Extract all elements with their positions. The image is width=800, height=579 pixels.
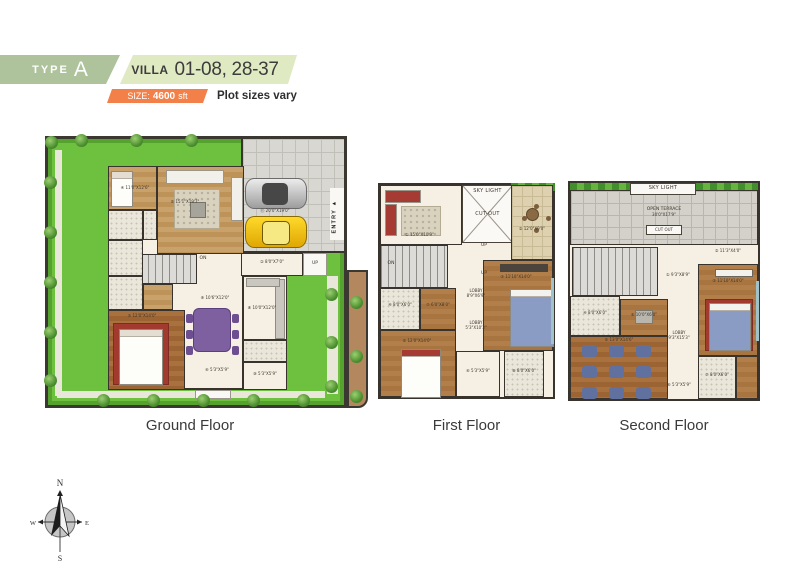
villa-band: VILLA 01-08, 28-37 xyxy=(113,55,297,84)
tree-icon xyxy=(185,134,198,147)
ground-floor-plan: ENTRY ▲ ⑪ 20'0"X19'0" ④ 11'0"X12'6" ⑤ 15… xyxy=(45,136,368,408)
second-store-label: ⑥ 5'3"X5'9" xyxy=(662,383,696,388)
dining-label: ⑨ 10'6"X12'0" xyxy=(193,296,237,301)
bed-headboard xyxy=(402,350,440,357)
car-yellow-cabin xyxy=(262,221,290,245)
tree-icon xyxy=(197,394,210,407)
first-bed5-label: ⑤ 12'0"X14'0" xyxy=(392,339,442,344)
tree-icon xyxy=(325,336,338,349)
compass-s: S xyxy=(58,554,62,563)
second-lobby-b-label: LOBBY 9'3"X15'3" xyxy=(664,331,694,340)
bed-pillows xyxy=(710,304,750,311)
tree-icon xyxy=(97,394,110,407)
theater-label: ⑤ 13'0"X14'6" xyxy=(584,338,654,343)
car-yellow xyxy=(245,216,307,248)
first-bath8 xyxy=(504,351,544,397)
window-strip xyxy=(756,281,759,341)
second-av-label: ⑥ 10'0"X6'0" xyxy=(622,313,666,318)
living-room xyxy=(157,166,244,254)
size-label: SIZE: xyxy=(127,91,150,101)
master-bed xyxy=(119,329,163,385)
second-bath7-label: ⑦ 8'0"X6'0" xyxy=(700,373,734,378)
tree-icon xyxy=(44,326,57,339)
villa-numbers: 01-08, 28-37 xyxy=(175,59,279,81)
foyer-label: ⑥ 5'3"X5'9" xyxy=(197,368,237,373)
car-silver-cabin xyxy=(262,183,288,205)
first-bed3-label: ③ 11'10"X14'0" xyxy=(490,275,542,280)
bath-c xyxy=(243,340,287,362)
bath-a xyxy=(108,210,143,240)
master-label: ③ 12'0"X14'0" xyxy=(117,314,167,319)
dining-chairs-left xyxy=(186,314,193,323)
tree-icon xyxy=(147,394,160,407)
tree-icon xyxy=(247,394,260,407)
sitout-label: ② 8'0"X7'0" xyxy=(249,260,295,265)
first-stairs xyxy=(380,245,448,288)
first-store6 xyxy=(456,351,500,397)
compass-e: E xyxy=(85,520,89,527)
size-unit: sft xyxy=(178,91,188,101)
tree-icon xyxy=(350,390,363,403)
compass: N W E S xyxy=(28,478,92,564)
first-bed3-bed xyxy=(510,289,554,347)
tree-icon xyxy=(297,394,310,407)
skylight-label: SKY LIGHT xyxy=(463,189,512,195)
ground-floor-title: Ground Floor xyxy=(45,417,335,434)
terrace-cutout-label: CUT OUT xyxy=(646,228,682,233)
second-stairs xyxy=(572,247,658,296)
second-lobby-a-label: ① 9'3"X8'9" xyxy=(658,273,698,278)
plot-note: Plot sizes vary xyxy=(217,90,297,102)
living-label: ⑤ 15'1"X19'7" xyxy=(163,200,207,205)
tree-icon xyxy=(325,380,338,393)
step-up-label: UP xyxy=(307,261,323,266)
first-dress7 xyxy=(420,288,456,330)
side-planting-strip xyxy=(347,270,368,408)
second-bed3-bed xyxy=(709,303,751,351)
tree-icon xyxy=(350,350,363,363)
wardrobe xyxy=(500,264,548,272)
sofa-right xyxy=(231,177,243,221)
villa-label: VILLA xyxy=(131,63,168,77)
master-bedroom xyxy=(108,310,185,390)
tree-icon xyxy=(44,276,57,289)
first-terrace xyxy=(511,185,553,260)
first-floor-title: First Floor xyxy=(378,417,555,434)
utility-label: ⑩ 5'3"X5'9" xyxy=(245,372,285,377)
carpark-label: ⑪ 20'0"X19'0" xyxy=(245,209,305,214)
sofa-left xyxy=(385,204,397,236)
first-bath4 xyxy=(380,288,420,330)
second-bath4 xyxy=(570,296,620,336)
bed-headboard xyxy=(112,172,132,179)
garden-walkway-left xyxy=(55,150,62,396)
first-bed5-bed xyxy=(401,349,441,398)
type-value: A xyxy=(74,58,88,82)
wc-b xyxy=(108,276,143,310)
type-label: TYPE xyxy=(32,64,69,76)
first-bath4-label: ④ 8'0"X6'0" xyxy=(382,303,418,308)
second-floor-title: Second Floor xyxy=(568,417,760,434)
tree-icon xyxy=(350,296,363,309)
second-skylight-label: SKY LIGHT xyxy=(630,186,696,192)
car-silver xyxy=(245,178,307,209)
first-up-label-1: UP xyxy=(476,243,492,248)
tree-icon xyxy=(44,176,57,189)
second-pass-label: ② 11'3"X4'0" xyxy=(704,249,752,254)
floorplan-brochure-page: TYPE A VILLA 01-08, 28-37 SIZE: 4600 sft… xyxy=(0,0,800,579)
first-store6-label: ⑥ 5'3"X5'9" xyxy=(460,369,496,374)
terrace-label: ② 12'0"X9'0" xyxy=(515,227,549,232)
size-value: 4600 xyxy=(153,91,175,102)
kitchen-label: ⑧ 10'0"X12'0" xyxy=(243,306,281,311)
closet-a xyxy=(143,210,157,240)
compass-w: W xyxy=(30,520,37,527)
first-dress7-label: ⑦ 6'0"X8'0" xyxy=(422,303,454,308)
window-strip xyxy=(551,278,554,344)
compass-n: N xyxy=(57,478,64,488)
terrace-table xyxy=(526,208,539,221)
bedroom2-label: ④ 11'0"X12'6" xyxy=(115,186,155,191)
tree-icon xyxy=(75,134,88,147)
bath-b xyxy=(108,240,143,276)
tree-icon xyxy=(325,288,338,301)
tree-icon xyxy=(44,226,57,239)
first-lobby-b: LOBBY 5'3"X10'3" xyxy=(462,321,490,330)
sofa-top xyxy=(166,170,224,184)
size-badge: SIZE: 4600 sft xyxy=(107,89,208,103)
dressing xyxy=(143,284,173,310)
first-floor-plan: ① 15'0"X10'9" SKY LIGHT CUT-OUT ② 12'0"X… xyxy=(378,183,555,399)
first-on-label: ON xyxy=(384,261,398,266)
dining-table xyxy=(193,308,231,352)
master-bed-headboard xyxy=(120,330,162,337)
first-bath8-label: ⑧ 8'0"X6'0" xyxy=(506,369,542,374)
tree-icon xyxy=(44,374,57,387)
second-bed3-label: ③ 11'10"X14'0" xyxy=(702,279,754,284)
second-floor-plan: SKY LIGHT OPEN TERRACE 30'0"X17'9" CUT O… xyxy=(568,181,760,401)
stairs-on-label: ON xyxy=(195,256,211,261)
entry-label: ENTRY ▲ xyxy=(332,194,341,234)
tree-icon xyxy=(130,134,143,147)
type-band: TYPE A xyxy=(0,55,120,84)
living-rug xyxy=(174,189,220,229)
first-lobby-a: LOBBY 8'9"X6'9" xyxy=(462,289,490,298)
theater-recliner-seats xyxy=(582,345,597,357)
dining-chairs-right xyxy=(232,314,239,323)
cutout-label: CUT-OUT xyxy=(463,212,512,218)
second-closet xyxy=(736,356,758,399)
second-bath4-label: ④ 8'0"X6'0" xyxy=(574,311,616,316)
wardrobe xyxy=(715,269,753,277)
sofa-red xyxy=(385,190,421,203)
family-label: ① 15'0"X10'9" xyxy=(392,233,447,238)
skylight-cutout: SKY LIGHT CUT-OUT xyxy=(462,185,513,243)
kitchen-counter-top xyxy=(246,278,280,287)
open-terrace-dim: 30'0"X17'9" xyxy=(608,213,720,218)
compass-rose-icon: N W E S xyxy=(28,478,92,564)
tree-icon xyxy=(45,136,58,149)
bed-pillows xyxy=(511,290,553,297)
